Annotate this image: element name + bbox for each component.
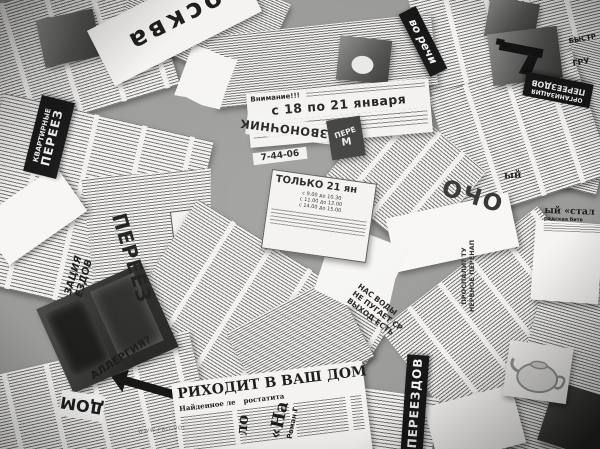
fragment-yi: ый — [504, 170, 522, 182]
headline-dom: ДОМ — [59, 393, 105, 419]
phone-strip: 7-44-06 — [252, 147, 307, 165]
teapot-sketch — [502, 340, 573, 404]
header-prospali: ПРОСПАЛИ? ТУ — [460, 247, 468, 304]
fragment-gru: ГРУ — [572, 53, 600, 68]
white-cup — [351, 55, 375, 75]
cup-photo — [336, 35, 392, 84]
teapot-drawing — [502, 340, 573, 404]
newspaper-collage-photo: осква во речи Внимание!!! с 18 по 21 янв… — [0, 0, 600, 449]
column-headers: ПРОСПАЛИ? ТУ НЕРВНОЕ ПЕРЕНАП — [456, 232, 480, 320]
ad-tolko-21: ТОЛЬКО 21 ян с 9.00 до 10.30 с 11.00 до … — [261, 169, 377, 263]
header-nervnoe: НЕРВНОЕ ПЕРЕНАП — [468, 240, 476, 312]
fine-print-lines — [544, 223, 600, 233]
dark-ad-patch: ПЕРЕ М — [326, 116, 366, 161]
fragment-lo: ло — [232, 414, 252, 436]
article-stal: ый «стал радская битв — [543, 205, 600, 237]
phone-number: 7-44-06 — [260, 149, 300, 164]
banner-pereezdov-label: ПЕРЕЕЗДОВ — [405, 357, 424, 449]
